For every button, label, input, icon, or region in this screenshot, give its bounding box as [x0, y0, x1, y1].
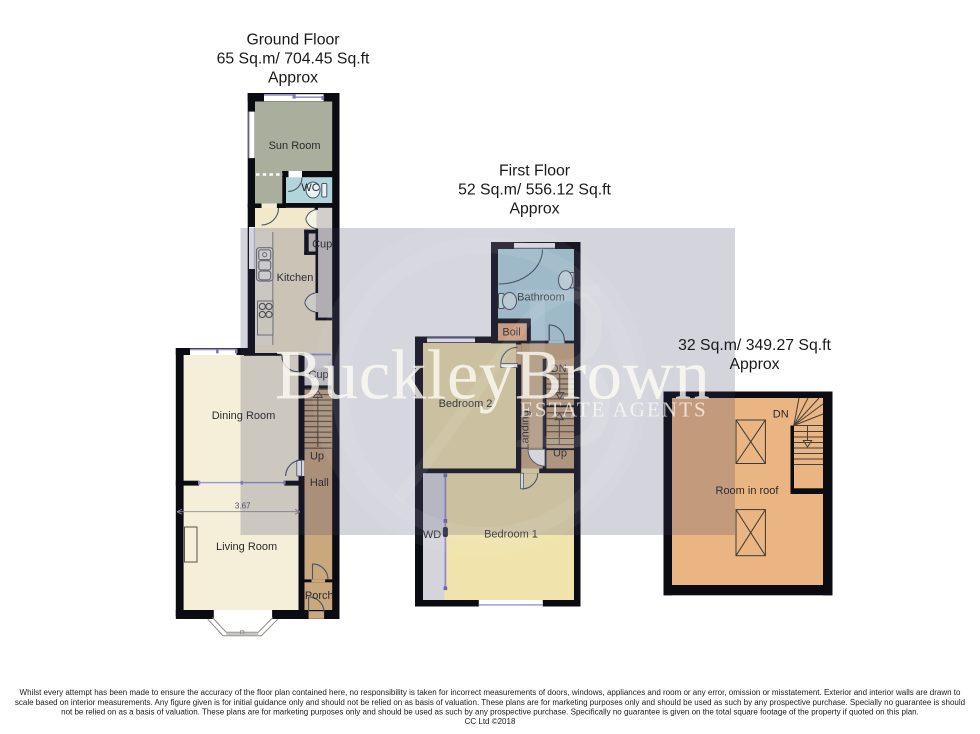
svg-text:Sun Room: Sun Room — [269, 140, 321, 152]
svg-text:not be relied on as a basis of: not be relied on as a basis of valuation… — [61, 708, 919, 717]
svg-text:Porch: Porch — [305, 590, 334, 602]
svg-text:Living Room: Living Room — [216, 541, 277, 553]
svg-text:Approx: Approx — [729, 356, 779, 373]
svg-text:CC Ltd ©2018: CC Ltd ©2018 — [465, 717, 516, 726]
svg-text:65 Sq.m/ 704.45 Sq.ft: 65 Sq.m/ 704.45 Sq.ft — [217, 51, 370, 68]
svg-text:WC: WC — [301, 182, 319, 194]
svg-text:DN: DN — [773, 409, 789, 421]
svg-text:Whilst every attempt has been: Whilst every attempt has been made to en… — [20, 688, 961, 697]
svg-text:Ground Floor: Ground Floor — [246, 32, 339, 49]
svg-text:32 Sq.m/ 349.27 Sq.ft: 32 Sq.m/ 349.27 Sq.ft — [678, 337, 831, 354]
svg-text:scale based on interior measur: scale based on interior measurements. An… — [15, 698, 965, 707]
svg-text:Approx: Approx — [268, 70, 318, 87]
svg-text:52 Sq.m/ 556.12 Sq.ft: 52 Sq.m/ 556.12 Sq.ft — [458, 182, 611, 199]
svg-text:Approx: Approx — [509, 200, 559, 217]
svg-text:ESTATE AGENTS: ESTATE AGENTS — [520, 398, 708, 422]
svg-text:First Floor: First Floor — [499, 163, 570, 180]
